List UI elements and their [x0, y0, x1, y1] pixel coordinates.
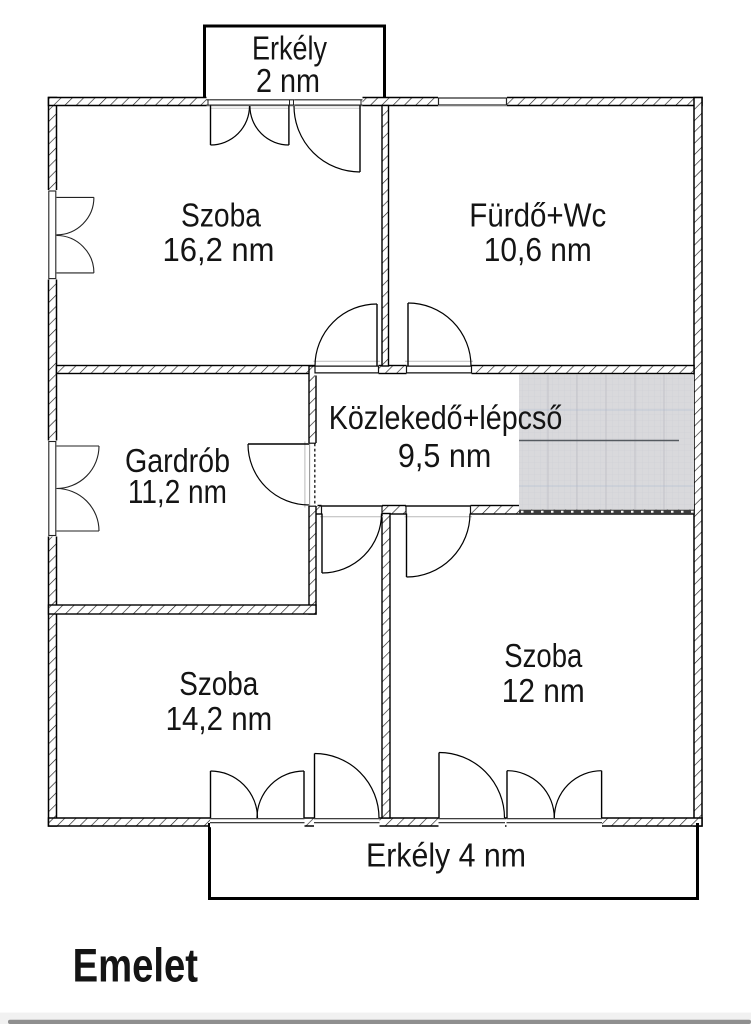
svg-text:16,2 nm: 16,2 nm	[163, 231, 275, 268]
svg-text:14,2 nm: 14,2 nm	[166, 700, 273, 737]
svg-text:12 nm: 12 nm	[502, 672, 585, 709]
svg-text:Erkély 4 nm: Erkély 4 nm	[366, 837, 526, 874]
svg-text:10,6 nm: 10,6 nm	[484, 231, 592, 268]
svg-text:Erkély: Erkély	[252, 30, 327, 67]
svg-text:Közlekedő+lépcső: Közlekedő+lépcső	[329, 399, 563, 436]
svg-text:11,2 nm: 11,2 nm	[128, 473, 227, 510]
svg-text:9,5 nm: 9,5 nm	[398, 437, 491, 474]
svg-text:2 nm: 2 nm	[256, 62, 320, 99]
svg-text:Szoba: Szoba	[181, 197, 262, 234]
svg-text:Szoba: Szoba	[504, 637, 583, 674]
svg-text:Emelet: Emelet	[73, 938, 199, 991]
svg-text:Fürdő+Wc: Fürdő+Wc	[469, 197, 606, 234]
svg-text:Szoba: Szoba	[179, 665, 259, 702]
